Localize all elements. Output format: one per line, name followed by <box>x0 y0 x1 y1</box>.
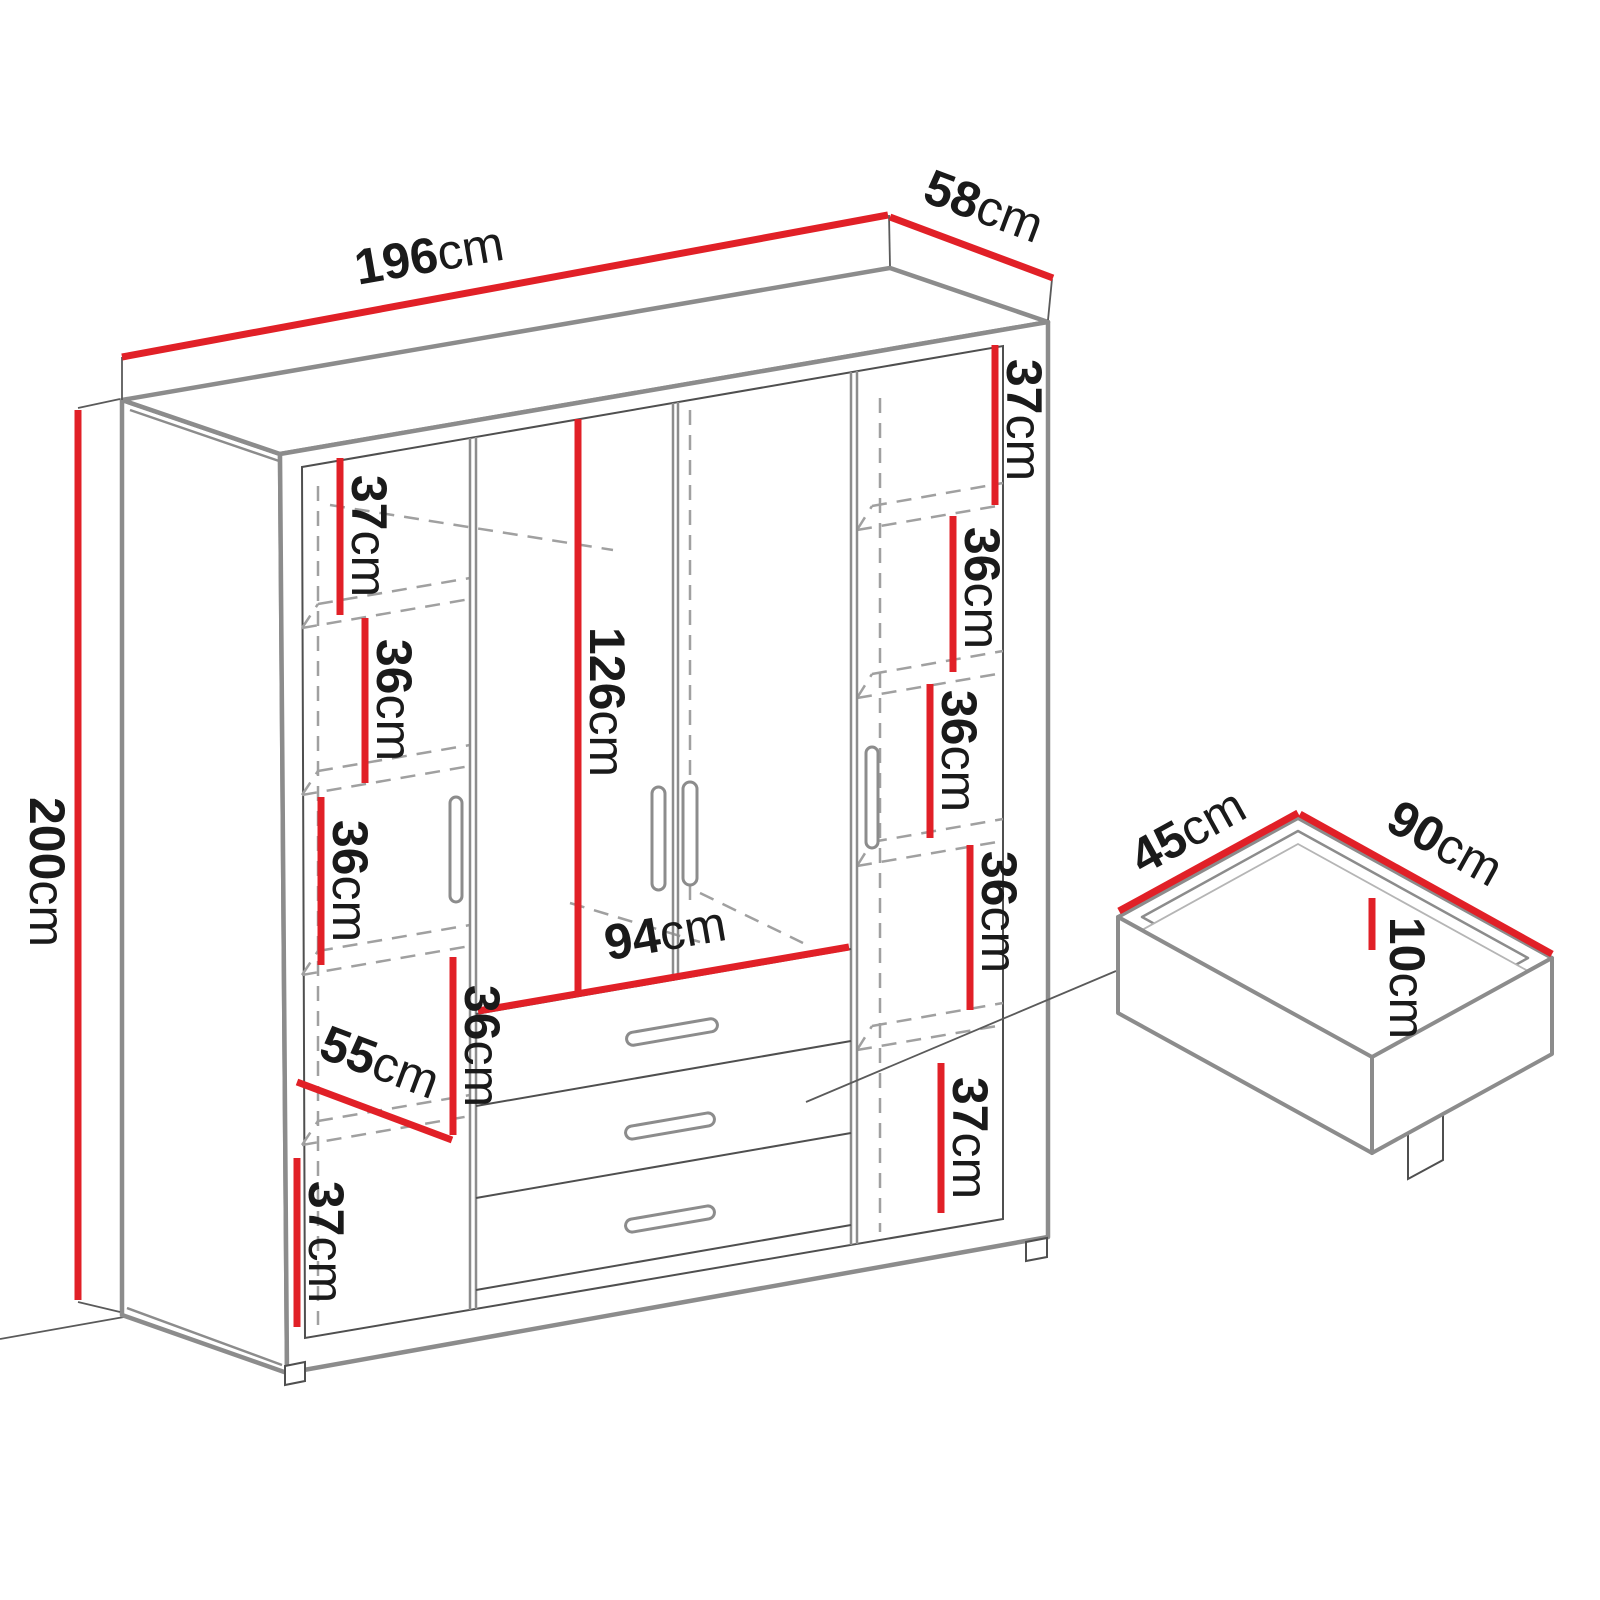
door-handle-center-right <box>683 782 697 885</box>
door-handle-left <box>450 797 462 902</box>
left-foot <box>285 1362 305 1385</box>
dim-label-right-shelf-5: 37cm <box>942 1077 998 1199</box>
diagram-svg: 196cm 58cm 200cm 37cm 36cm 36cm 36cm 55c… <box>0 0 1600 1600</box>
dim-label-depth: 58cm <box>917 158 1051 253</box>
dim-label-left-shelf-3: 36cm <box>322 820 378 942</box>
dim-label-left-shelf-5: 37cm <box>298 1181 354 1303</box>
extension-line <box>78 399 120 408</box>
dim-label-right-shelf-2: 36cm <box>954 527 1010 649</box>
dim-label-drawer-height: 10cm <box>1379 917 1435 1039</box>
left-side-panel <box>122 400 287 1373</box>
dim-label-height: 200cm <box>19 797 75 947</box>
dim-label-right-shelf-3: 36cm <box>931 690 987 812</box>
extension-line <box>1048 279 1052 320</box>
extension-line <box>78 1302 120 1312</box>
dim-label-left-shelf-4: 36cm <box>454 985 510 1107</box>
dim-label-left-shelf-2: 36cm <box>366 639 422 761</box>
dim-label-right-shelf-4: 36cm <box>971 851 1027 973</box>
wardrobe <box>122 268 1048 1385</box>
floor-line <box>0 1317 124 1339</box>
furniture-dimension-diagram: 196cm 58cm 200cm 37cm 36cm 36cm 36cm 55c… <box>0 0 1600 1600</box>
dim-label-left-shelf-1: 37cm <box>341 475 397 597</box>
door-handle-center-left <box>652 787 665 890</box>
dim-label-center-height: 126cm <box>579 627 635 777</box>
dim-label-width: 196cm <box>350 215 507 296</box>
door-handle-right <box>866 747 878 848</box>
dim-label-right-shelf-1: 37cm <box>996 359 1052 481</box>
extension-line <box>889 215 890 266</box>
right-foot <box>1026 1238 1047 1261</box>
